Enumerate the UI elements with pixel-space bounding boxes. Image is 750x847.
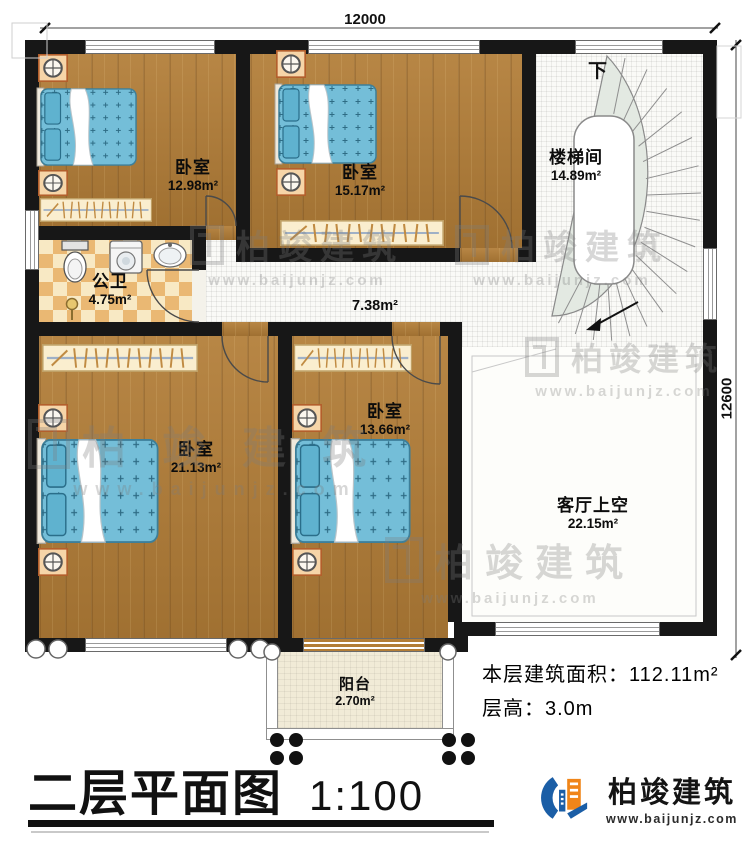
room-name: 公卫 bbox=[60, 272, 160, 292]
window bbox=[308, 40, 480, 54]
room-name: 卧室 bbox=[330, 402, 440, 422]
room-label-bedroom-bm: 卧室 13.66m² bbox=[330, 402, 440, 439]
title-text: 二层平面图 bbox=[28, 754, 283, 825]
wall-segment bbox=[518, 248, 536, 262]
nightstand-icon bbox=[38, 404, 68, 432]
company-website: www.baijunjz.com bbox=[606, 812, 738, 826]
room-label-bedroom-tl: 卧室 12.98m² bbox=[133, 158, 253, 195]
window bbox=[85, 40, 215, 54]
room-label-balcony: 阳台 2.70m² bbox=[305, 676, 405, 709]
balcony-rail-right bbox=[442, 650, 454, 740]
room-area: 22.15m² bbox=[525, 516, 661, 532]
nightstand-icon bbox=[38, 548, 68, 576]
door-threshold bbox=[206, 226, 236, 240]
drawing-title: 二层平面图 1:100 bbox=[28, 754, 424, 825]
wall-segment bbox=[440, 322, 462, 336]
wall-segment bbox=[448, 336, 462, 622]
company-logo-icon bbox=[540, 768, 598, 826]
bed-icon bbox=[274, 82, 378, 166]
title-underline-thin bbox=[31, 831, 489, 833]
room-name: 卧室 bbox=[133, 158, 253, 178]
window bbox=[85, 638, 227, 652]
stair-direction-label: 下 bbox=[588, 56, 607, 83]
wall-segment bbox=[236, 248, 460, 262]
floor-area-annotation: 本层建筑面积：112.11m² bbox=[482, 658, 719, 687]
room-label-bedroom-bl: 卧室 21.13m² bbox=[136, 440, 256, 477]
wardrobe-icon bbox=[42, 344, 198, 372]
wardrobe-icon bbox=[294, 344, 412, 372]
wall-segment bbox=[454, 622, 468, 652]
room-name: 卧室 bbox=[136, 440, 256, 460]
room-label-living-void: 客厅上空 22.15m² bbox=[525, 496, 661, 533]
company-name: 柏竣建筑 bbox=[608, 769, 736, 811]
floor-height-label: 层高： bbox=[482, 698, 545, 720]
wall-segment bbox=[236, 54, 250, 226]
room-name: 客厅上空 bbox=[525, 496, 661, 516]
floor-plan: 12000 12600 bbox=[0, 0, 750, 847]
wall-segment bbox=[703, 54, 717, 636]
wall-segment bbox=[25, 226, 206, 240]
window bbox=[703, 248, 717, 320]
exterior-pier-outline bbox=[717, 46, 741, 118]
balcony-door bbox=[303, 638, 425, 652]
dimension-top: 12000 bbox=[320, 11, 410, 28]
room-area: 12.98m² bbox=[133, 178, 253, 194]
floor-stairwell bbox=[536, 54, 703, 347]
nightstand-icon bbox=[292, 404, 322, 432]
washing-machine-icon bbox=[110, 241, 142, 273]
room-label-bathroom: 公卫 4.75m² bbox=[60, 272, 160, 309]
room-area: 21.13m² bbox=[136, 460, 256, 476]
room-name: 楼梯间 bbox=[524, 148, 628, 168]
title-underline bbox=[28, 820, 494, 827]
balcony-rail-bottom bbox=[266, 728, 454, 740]
door-threshold bbox=[460, 248, 518, 262]
room-area: 14.89m² bbox=[524, 168, 628, 184]
room-name: 卧室 bbox=[300, 163, 420, 183]
door-threshold bbox=[222, 322, 268, 336]
balcony-rail-left bbox=[266, 650, 278, 740]
floor-corridor-c bbox=[462, 262, 536, 347]
bed-icon bbox=[36, 86, 138, 168]
window bbox=[575, 40, 663, 54]
window bbox=[495, 622, 660, 636]
room-area: 2.70m² bbox=[305, 694, 405, 709]
wardrobe-icon bbox=[40, 198, 152, 222]
window bbox=[25, 210, 39, 270]
floor-area-label: 本层建筑面积： bbox=[482, 664, 629, 686]
door-threshold bbox=[392, 322, 440, 336]
floor-height-value: 3.0m bbox=[545, 698, 593, 720]
company-logo: 柏竣建筑 www.baijunjz.com bbox=[540, 768, 738, 826]
room-area: 4.75m² bbox=[60, 292, 160, 308]
floor-living-void bbox=[462, 347, 703, 622]
room-area: 15.17m² bbox=[300, 183, 420, 199]
nightstand-icon bbox=[292, 548, 322, 576]
wall-segment bbox=[268, 322, 392, 336]
floor-height-annotation: 层高：3.0m bbox=[482, 692, 593, 721]
nightstand-icon bbox=[38, 170, 68, 196]
room-label-stairwell: 楼梯间 14.89m² bbox=[524, 148, 628, 185]
room-area: 13.66m² bbox=[330, 422, 440, 438]
title-scale: 1:100 bbox=[309, 772, 424, 820]
room-area: 7.38m² bbox=[330, 298, 420, 315]
wardrobe-icon bbox=[280, 220, 444, 246]
bed-icon bbox=[290, 436, 412, 546]
floor-area-value: 112.11m² bbox=[629, 664, 719, 686]
sink-icon bbox=[154, 243, 186, 267]
nightstand-icon bbox=[276, 50, 306, 78]
nightstand-icon bbox=[38, 54, 68, 82]
room-label-corridor: 7.38m² bbox=[330, 298, 420, 315]
dimension-right: 12600 bbox=[719, 354, 736, 444]
room-label-bedroom-tm: 卧室 15.17m² bbox=[300, 163, 420, 200]
room-name: 阳台 bbox=[305, 676, 405, 694]
